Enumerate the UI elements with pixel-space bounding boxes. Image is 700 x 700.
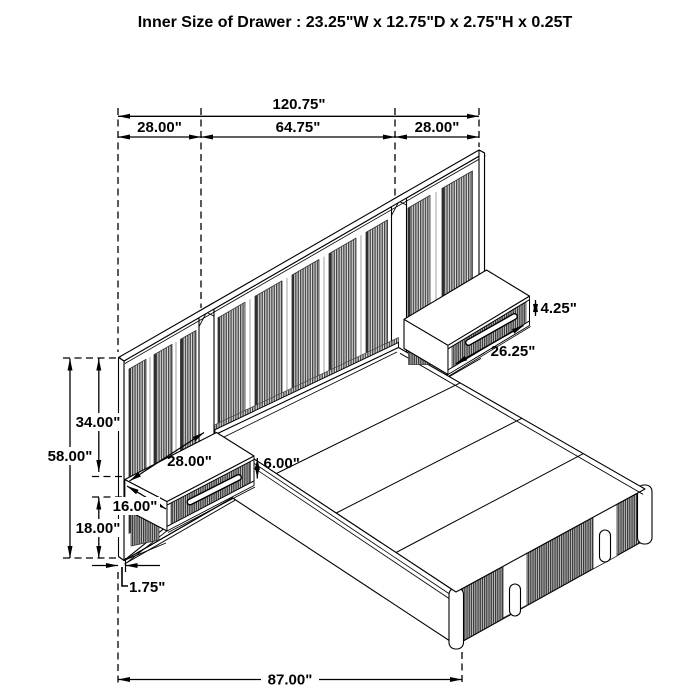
svg-text:28.00": 28.00" xyxy=(167,453,212,470)
svg-text:18.00": 18.00" xyxy=(76,520,121,537)
svg-text:28.00": 28.00" xyxy=(137,119,182,136)
svg-text:34.00": 34.00" xyxy=(76,414,121,431)
svg-text:1.75": 1.75" xyxy=(129,579,165,596)
svg-text:64.75": 64.75" xyxy=(276,119,321,136)
svg-text:28.00": 28.00" xyxy=(415,119,460,136)
svg-text:87.00": 87.00" xyxy=(268,672,313,689)
svg-text:4.25": 4.25" xyxy=(541,300,577,317)
svg-text:16.00": 16.00" xyxy=(113,498,158,515)
svg-text:120.75": 120.75" xyxy=(273,96,326,113)
svg-text:Inner Size of Drawer : 23.25"W: Inner Size of Drawer : 23.25"W x 12.75"D… xyxy=(138,14,573,31)
svg-text:26.25": 26.25" xyxy=(491,343,536,360)
svg-text:58.00": 58.00" xyxy=(48,448,93,465)
svg-text:6.00": 6.00" xyxy=(264,455,300,472)
